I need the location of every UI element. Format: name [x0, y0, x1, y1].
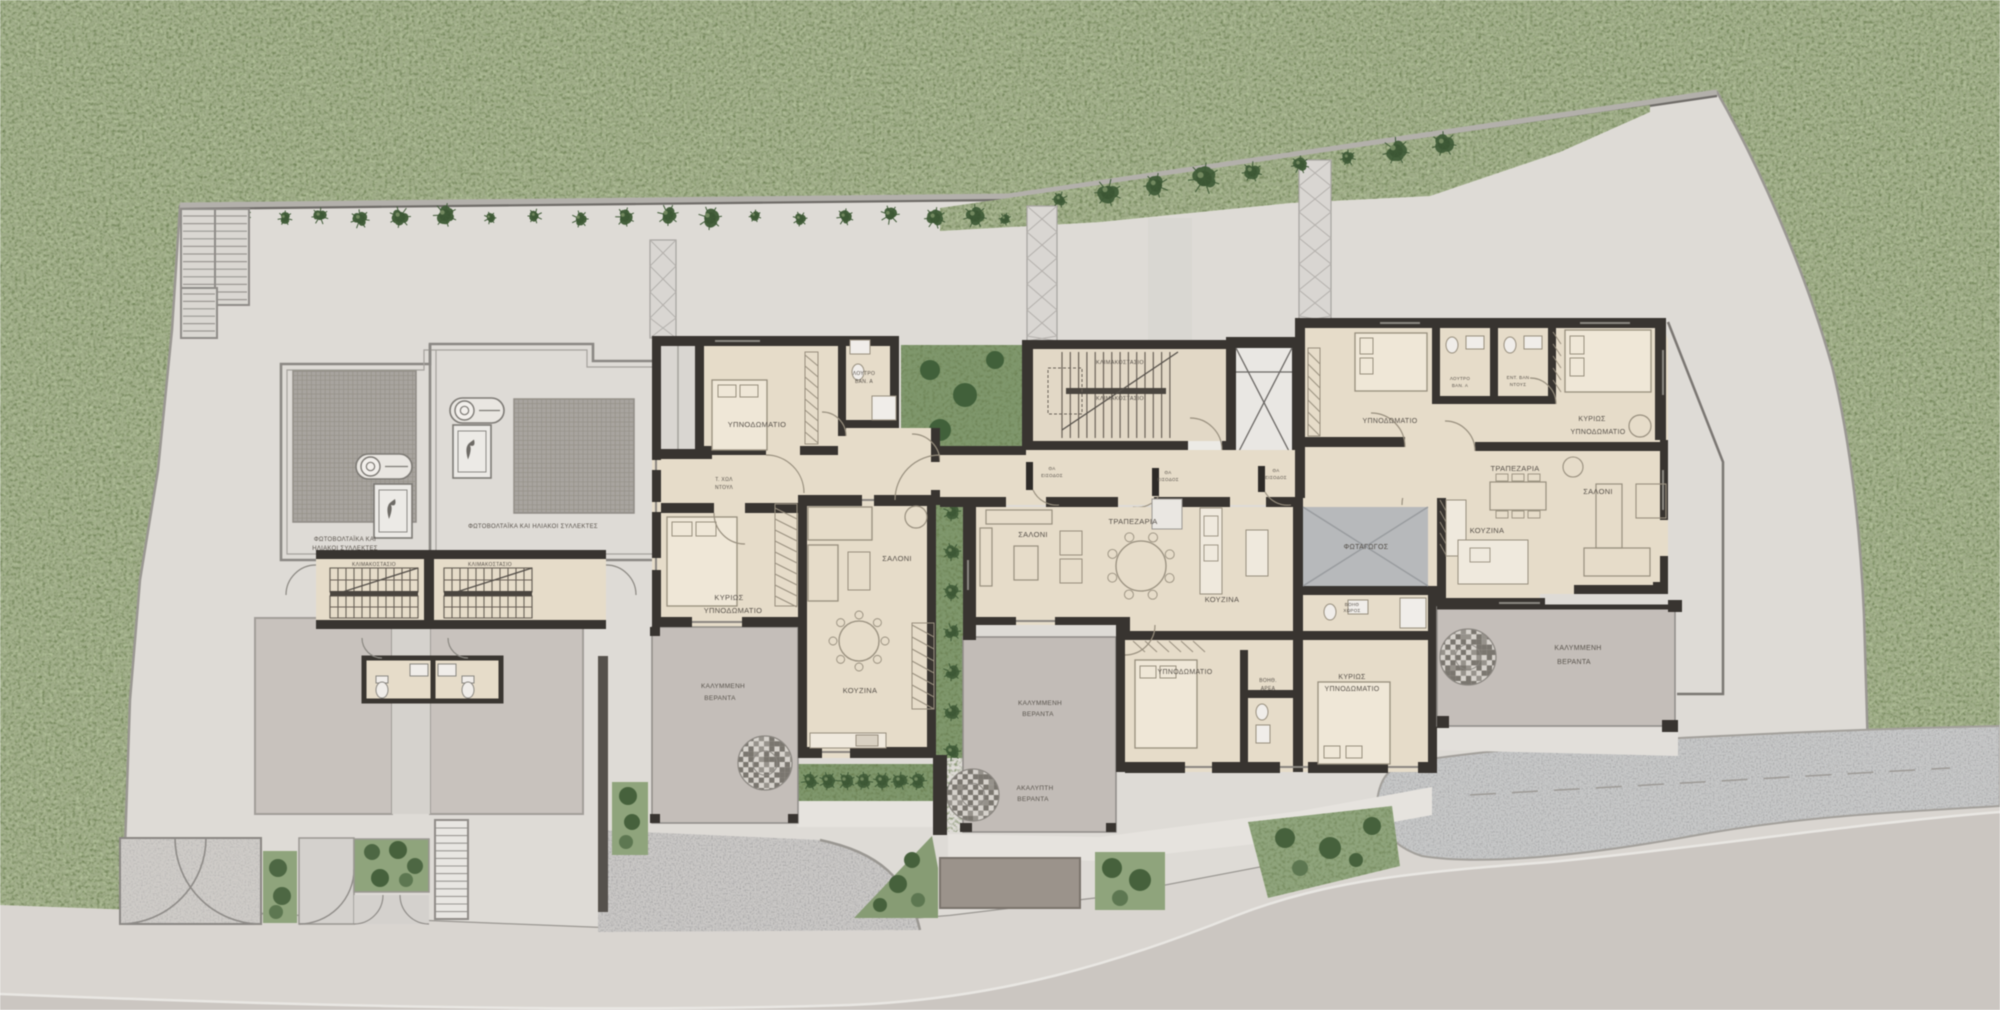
svg-text:ΥΠΝΟΔΩΜΑΤΙΟ: ΥΠΝΟΔΩΜΑΤΙΟ	[1571, 429, 1626, 436]
svg-text:ΣΑΛΟΝΙ: ΣΑΛΟΝΙ	[882, 554, 912, 563]
svg-text:ΚΑΛΥΜΜΕΝΗ: ΚΑΛΥΜΜΕΝΗ	[1554, 645, 1601, 652]
svg-text:ΣΑΛΟΝΙ: ΣΑΛΟΝΙ	[1583, 487, 1613, 496]
svg-text:ΧΩΡΟΣ: ΧΩΡΟΣ	[1343, 608, 1360, 613]
svg-text:ΘΑ: ΘΑ	[1048, 466, 1055, 471]
svg-text:ΤΡΑΠΕΖΑΡΙΑ: ΤΡΑΠΕΖΑΡΙΑ	[1490, 464, 1539, 473]
svg-text:ΒΑΝ. Α: ΒΑΝ. Α	[1452, 383, 1468, 388]
svg-text:ΒΕΡΑΝΤΑ: ΒΕΡΑΝΤΑ	[704, 695, 736, 702]
svg-text:ΚΥΡΙΩΣ: ΚΥΡΙΩΣ	[1338, 674, 1366, 681]
svg-text:ΥΠΝΟΔΩΜΑΤΙΟ: ΥΠΝΟΔΩΜΑΤΙΟ	[1363, 418, 1418, 425]
svg-text:ΕΝΤ. ΒΑΝ: ΕΝΤ. ΒΑΝ	[1507, 375, 1530, 380]
svg-text:ΒΕΡΑΝΤΑ: ΒΕΡΑΝΤΑ	[1022, 711, 1054, 718]
svg-text:ΒΟΗΘ.: ΒΟΗΘ.	[1259, 678, 1277, 684]
svg-text:ΒΟΗΘ: ΒΟΗΘ	[1345, 602, 1360, 607]
svg-text:ΚΥΡΙΩΣ: ΚΥΡΙΩΣ	[1578, 416, 1606, 423]
svg-text:ΥΠΝΟΔΩΜΑΤΙΟ: ΥΠΝΟΔΩΜΑΤΙΟ	[728, 420, 787, 429]
svg-text:ΥΠΝΟΔΩΜΑΤΙΟ: ΥΠΝΟΔΩΜΑΤΙΟ	[1158, 669, 1213, 676]
svg-text:ΦΩΤΑΓΩΓΟΣ: ΦΩΤΑΓΩΓΟΣ	[1344, 544, 1389, 551]
svg-text:ΦΩΤΟΒΟΛΤΑΪΚΑ ΚΑΙ ΗΛΙΑΚΟΙ ΣΥΛΛΕ: ΦΩΤΟΒΟΛΤΑΪΚΑ ΚΑΙ ΗΛΙΑΚΟΙ ΣΥΛΛΕΚΤΕΣ	[468, 523, 598, 530]
svg-text:ΑΚΑΛΥΠΤΗ: ΑΚΑΛΥΠΤΗ	[1017, 785, 1054, 792]
svg-text:ΝΤΟΥΛ: ΝΤΟΥΛ	[715, 485, 733, 491]
svg-text:ΣΑΛΟΝΙ: ΣΑΛΟΝΙ	[1018, 530, 1048, 539]
svg-text:ΚΛΙΜΑΚΟΣΤΑΣΙΟ: ΚΛΙΜΑΚΟΣΤΑΣΙΟ	[352, 562, 396, 568]
svg-text:ΝΤΟΥΣ: ΝΤΟΥΣ	[1510, 382, 1527, 387]
svg-text:ΘΑ: ΘΑ	[1164, 470, 1171, 475]
svg-text:ΥΠΝΟΔΩΜΑΤΙΟ: ΥΠΝΟΔΩΜΑΤΙΟ	[704, 606, 763, 615]
svg-text:ΚΟΥΖΙΝΑ: ΚΟΥΖΙΝΑ	[1205, 595, 1240, 604]
svg-text:ΤΡΑΠΕΖΑΡΙΑ: ΤΡΑΠΕΖΑΡΙΑ	[1108, 517, 1157, 526]
svg-text:ΘΑ: ΘΑ	[1272, 468, 1279, 473]
svg-text:ΑΡΕΑ: ΑΡΕΑ	[1261, 686, 1276, 692]
svg-text:ΒΕΡΑΝΤΑ: ΒΕΡΑΝΤΑ	[1557, 659, 1591, 666]
svg-text:ΚΛΙΜΑΚΟΣΤΑΣΙΟ: ΚΛΙΜΑΚΟΣΤΑΣΙΟ	[1096, 360, 1144, 366]
svg-text:ΚΟΥΖΙΝΑ: ΚΟΥΖΙΝΑ	[843, 686, 878, 695]
svg-text:Τ. ΧΩΛ: Τ. ΧΩΛ	[715, 477, 733, 483]
svg-text:ΚΑΛΥΜΜΕΝΗ: ΚΑΛΥΜΜΕΝΗ	[1018, 700, 1062, 707]
svg-text:ΛΟΥΤΡΟ: ΛΟΥΤΡΟ	[853, 371, 875, 377]
svg-text:ΕΙΣΟΔΟΣ: ΕΙΣΟΔΟΣ	[1041, 473, 1063, 478]
svg-text:ΒΕΡΑΝΤΑ: ΒΕΡΑΝΤΑ	[1017, 796, 1049, 803]
svg-text:ΛΟΥΤΡΟ: ΛΟΥΤΡΟ	[1450, 376, 1471, 381]
svg-text:ΚΥΡΙΩΣ: ΚΥΡΙΩΣ	[714, 593, 743, 602]
svg-text:ΦΩΤΟΒΟΛΤΑΪΚΑ ΚΑΙ: ΦΩΤΟΒΟΛΤΑΪΚΑ ΚΑΙ	[314, 536, 376, 543]
svg-text:ΒΑΝ. Α: ΒΑΝ. Α	[855, 379, 873, 385]
svg-text:ΚΛΙΜΑΚΟΣΤΑΣΙΟ: ΚΛΙΜΑΚΟΣΤΑΣΙΟ	[1096, 396, 1144, 402]
svg-text:ΕΙΣΟΔΟΣ: ΕΙΣΟΔΟΣ	[1157, 477, 1179, 482]
svg-text:ΚΑΛΥΜΜΕΝΗ: ΚΑΛΥΜΜΕΝΗ	[701, 683, 745, 690]
svg-text:ΕΙΣΟΔΟΣ: ΕΙΣΟΔΟΣ	[1265, 475, 1287, 480]
svg-text:ΥΠΝΟΔΩΜΑΤΙΟ: ΥΠΝΟΔΩΜΑΤΙΟ	[1325, 686, 1380, 693]
svg-text:ΚΛΙΜΑΚΟΣΤΑΣΙΟ: ΚΛΙΜΑΚΟΣΤΑΣΙΟ	[468, 562, 512, 568]
svg-text:ΚΟΥΖΙΝΑ: ΚΟΥΖΙΝΑ	[1470, 526, 1505, 535]
